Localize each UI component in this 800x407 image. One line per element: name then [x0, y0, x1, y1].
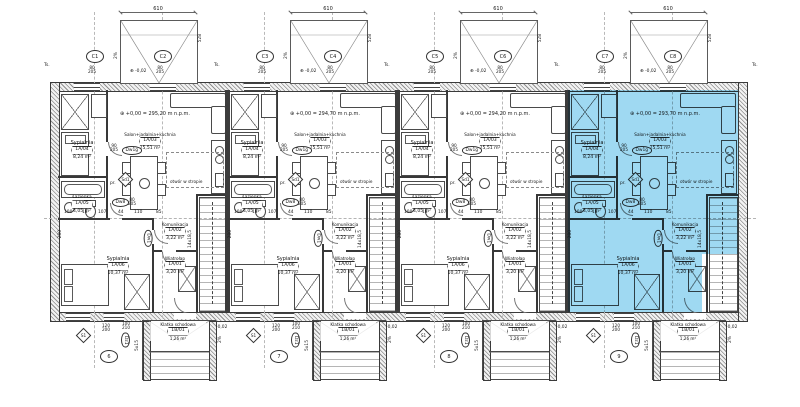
stairs-direction-line: [382, 202, 383, 304]
wardrobe-symbol: [401, 94, 429, 130]
room-tag: 1A/05: [411, 200, 432, 209]
door-size-dim: 100210: [462, 322, 470, 331]
terrace-level-mark: ⊕ -0,02: [130, 70, 146, 74]
level-mark-icon: ⊕: [630, 111, 634, 117]
dim-number: 110: [474, 211, 482, 215]
chair-symbol: [157, 184, 166, 196]
wall: [366, 194, 368, 312]
entrance-door-gap: [684, 313, 706, 320]
window-symbol: [244, 83, 270, 92]
slope-note: 2%: [728, 336, 733, 343]
slope-note: 2%: [218, 336, 223, 343]
chair-symbol: [667, 162, 676, 174]
terrace-level-mark: ⊕ -0,02: [300, 70, 316, 74]
door-tag: Dw8: [112, 198, 129, 207]
chair-symbol: [327, 162, 336, 174]
window-size-dim: 80205: [666, 66, 674, 75]
level-note: -0,02: [726, 326, 737, 330]
room-label-wiatrolap: Wiatrołap 1A/01 3,20 m²: [324, 256, 366, 275]
door-tag: Dz1: [461, 333, 470, 348]
room-tag: 1A/02: [334, 227, 355, 236]
window-size-dim: 80205: [326, 66, 334, 75]
dim-number: 280: [58, 230, 63, 238]
room-tag: 1A/05: [241, 200, 262, 209]
window-symbol: [66, 313, 90, 322]
window-size-dim: 80205: [496, 66, 504, 75]
level-note: -0,02: [216, 326, 227, 330]
wall: [122, 218, 154, 220]
chair-symbol: [157, 162, 166, 174]
room-label-komunikacja: Komunikacja 1A/02 3,22 m²: [324, 222, 366, 241]
wall: [446, 156, 448, 218]
terrace-level-mark: ⊕ -0,02: [470, 70, 486, 74]
sofa-symbol: [551, 106, 566, 134]
level-mark-icon: ⊕: [290, 111, 294, 117]
level-annotation: ⊕ +0,00 = 293,70 m n.p.m.: [630, 112, 700, 117]
room-tag: 1A/05: [581, 200, 602, 209]
dim-number: 44: [458, 211, 464, 215]
door-tag: Dw1g: [462, 146, 482, 155]
door-tag: Dw1g: [292, 146, 312, 155]
dim-number: 280: [568, 230, 573, 238]
window-symbol: [74, 83, 100, 92]
room-label-sypialnia-top: Sypialnia 1A/04 8,24 m²: [59, 140, 105, 160]
stairs-symbol: [369, 197, 398, 312]
room-tag: 1A/04: [71, 146, 92, 155]
room-tag: 1B/01: [507, 327, 528, 336]
terrace-dimension-line: 610: [290, 12, 366, 13]
level-annotation: ⊕ +0,00 = 294,70 m n.p.m.: [290, 112, 360, 117]
room-tag: 1A/04: [411, 146, 432, 155]
axis-dim: 120200: [442, 324, 450, 333]
wall: [662, 250, 672, 252]
wall-note: Ts.: [384, 64, 390, 68]
door-tag: Dw1: [654, 230, 663, 247]
dim-number: 44: [288, 211, 294, 215]
wall: [662, 244, 664, 312]
dim-number: 280: [398, 230, 403, 238]
ceiling-opening-label: otwór w stropie: [510, 180, 542, 184]
wall: [346, 250, 368, 252]
section-marker: S1: [416, 328, 432, 344]
door-swing-symbol: [684, 298, 700, 314]
door-tag: Dw1: [484, 230, 493, 247]
window-symbol: [320, 83, 346, 92]
wall: [228, 176, 277, 178]
room-tag: 1A/06: [107, 262, 128, 271]
terrace-depth-dim: 528: [198, 34, 203, 42]
room-label-sypialnia-bottom: Sypialnia 1A/06 10,37 m²: [262, 256, 314, 276]
window-size-dim: 80205: [156, 66, 164, 75]
section-marker: S1: [76, 328, 92, 344]
ext-stairs-note: 5x15: [135, 340, 140, 351]
door-tag: Dw1: [144, 230, 153, 247]
washer-note: pr.: [450, 182, 456, 186]
door-swing-symbol: [344, 298, 360, 314]
room-tag: 1A/05: [71, 200, 92, 209]
room-tag: 1B/01: [337, 327, 358, 336]
level-annotation: ⊕ +0,00 = 294,20 m n.p.m.: [460, 112, 530, 117]
unit-interior: otwór w stropie 14x18,5 ⊕ +0,00 = 293,70…: [568, 90, 738, 312]
terrace-width-dim: 610: [662, 6, 674, 12]
dwelling-unit: C5 C6 80205 80205 Ts. 610 528 2% ⊕ -: [398, 0, 568, 407]
window-symbol: [406, 313, 430, 322]
dim-number: 110: [644, 211, 652, 215]
axis-bubble: C3: [256, 50, 274, 63]
dim-number: 85: [666, 211, 672, 215]
desk-symbol: [601, 94, 617, 118]
door-swing-symbol: [174, 298, 190, 314]
window-symbol: [444, 313, 464, 322]
section-marker: S1: [246, 328, 262, 344]
window-symbol: [614, 313, 634, 322]
window-symbol: [660, 83, 686, 92]
dim-number: 85: [496, 211, 502, 215]
wall: [398, 218, 450, 220]
axis-bubble: 8: [440, 350, 458, 363]
stairs-direction-line: [212, 202, 213, 304]
door-tag: Dz1: [631, 333, 640, 348]
wall: [322, 250, 332, 252]
room-label-klatka: Klatka schodowa 1B/01 1,26 m²: [490, 322, 546, 341]
wall: [276, 156, 278, 218]
level-mark-icon: ⊕: [120, 111, 124, 117]
slope-note: 2%: [624, 52, 629, 59]
dim-number: 85: [156, 211, 162, 215]
dim-number: 44: [118, 211, 124, 215]
room-tag: 1A/02: [504, 227, 525, 236]
room-label-komunikacja: Komunikacja 1A/02 3,22 m²: [154, 222, 196, 241]
window-symbol: [104, 313, 124, 322]
slope-note: 2%: [114, 52, 119, 59]
wall: [632, 218, 664, 220]
terrace-width-dim: 610: [492, 6, 504, 12]
wall: [568, 176, 617, 178]
wardrobe-symbol: [634, 274, 660, 310]
door-size-dim: 80205: [128, 198, 136, 207]
wall: [228, 218, 280, 220]
room-tag: 1A/03: [139, 137, 160, 146]
wall: [706, 194, 708, 312]
desk-symbol: [261, 94, 277, 118]
wall: [292, 218, 324, 220]
wall-note: Ts.: [44, 64, 50, 68]
washer-note: pr.: [620, 182, 626, 186]
dim-number: 110: [134, 211, 142, 215]
window-symbol: [490, 83, 516, 92]
ext-stairs-note: 5x15: [475, 340, 480, 351]
slope-note: 2%: [558, 336, 563, 343]
sofa-symbol: [721, 106, 736, 134]
terrace-depth-dim: 528: [708, 34, 713, 42]
axis-bubble: 6: [100, 350, 118, 363]
room-label-lazienka: Łazienka 1A/05 4,05 m²: [229, 195, 275, 214]
slope-note: 2%: [454, 52, 459, 59]
room-label-sypialnia-bottom: Sypialnia 1A/06 10,37 m²: [432, 256, 484, 276]
window-size-dim: 80205: [258, 66, 266, 75]
room-tag: 1A/06: [277, 262, 298, 271]
axis-bubble: C1: [86, 50, 104, 63]
room-label-wiatrolap: Wiatrołap 1A/01 3,20 m²: [664, 256, 706, 275]
wall: [106, 156, 108, 218]
room-tag: 1A/03: [309, 137, 330, 146]
ceiling-opening-label: otwór w stropie: [680, 180, 712, 184]
wall: [366, 194, 398, 196]
wardrobe-symbol: [124, 274, 150, 310]
terrace-level-mark: ⊕ -0,02: [640, 70, 656, 74]
wardrobe-symbol: [294, 274, 320, 310]
axis-bubble: C8: [664, 50, 682, 63]
door-size-dim: 100210: [122, 322, 130, 331]
wall: [462, 218, 494, 220]
section-marker: S1: [586, 328, 602, 344]
axis-bubble: C7: [596, 50, 614, 63]
door-tag: Dw1g: [122, 146, 142, 155]
room-tag: 1A/06: [447, 262, 468, 271]
unit-interior: otwór w stropie 14x18,5 ⊕ +0,00 = 294,20…: [398, 90, 568, 312]
wall: [196, 194, 228, 196]
room-tag: 1A/03: [649, 137, 670, 146]
wall-note: Ts.: [554, 64, 560, 68]
room-label-sypialnia-top: Sypialnia 1A/04 8,24 m²: [399, 140, 445, 160]
axis-bubble: C4: [324, 50, 342, 63]
entrance-door-gap: [514, 313, 536, 320]
axis-dim: 120200: [102, 324, 110, 333]
door-tag: Dz1: [121, 333, 130, 348]
window-size-dim: 80205: [88, 66, 96, 75]
wall: [492, 244, 494, 312]
room-label-komunikacja: Komunikacja 1A/02 3,22 m²: [664, 222, 706, 241]
wall: [176, 250, 198, 252]
wall: [536, 194, 538, 312]
dim-number: 280: [228, 230, 233, 238]
dwelling-unit: C7 C8 80205 80205 Ts. 610 528 2% ⊕ -: [568, 0, 738, 407]
room-label-sypialnia-bottom: Sypialnia 1A/06 10,37 m²: [602, 256, 654, 276]
room-label-sypialnia-bottom: Sypialnia 1A/06 10,37 m²: [92, 256, 144, 276]
wardrobe-symbol: [571, 94, 599, 130]
room-tag: 1A/02: [164, 227, 185, 236]
axis-dim: 120200: [612, 324, 620, 333]
axis-bubble: 7: [270, 350, 288, 363]
desk-symbol: [91, 94, 107, 118]
wall: [492, 250, 502, 252]
room-tag: 1A/02: [674, 227, 695, 236]
window-symbol: [274, 313, 294, 322]
window-symbol: [236, 313, 260, 322]
dwelling-unit: C1 C2 80205 80205 Ts. 610 528 2% ⊕ -: [58, 0, 228, 407]
wall: [152, 244, 154, 312]
slope-note: 2%: [284, 52, 289, 59]
terrace-width-dim: 610: [322, 6, 334, 12]
wall: [398, 176, 447, 178]
wall-note: Ts.: [752, 64, 758, 68]
dim-number: 44: [628, 211, 634, 215]
window-symbol: [584, 83, 610, 92]
ceiling-opening-label: otwór w stropie: [170, 180, 202, 184]
terrace-dimension-line: 610: [630, 12, 706, 13]
wardrobe-symbol: [464, 274, 490, 310]
stairs-symbol: [709, 197, 738, 312]
window-symbol: [414, 83, 440, 92]
entrance-door-gap: [344, 313, 366, 320]
ext-stairs-note: 5x15: [645, 340, 650, 351]
washer-note: pr.: [110, 182, 116, 186]
level-annotation: ⊕ +0,00 = 295,20 m n.p.m.: [120, 112, 190, 117]
desk-symbol: [431, 94, 447, 118]
dwelling-unit: C3 C4 80205 80205 Ts. 610 528 2% ⊕ -: [228, 0, 398, 407]
room-tag: 1A/01: [164, 261, 185, 270]
door-size-dim: 80205: [298, 198, 306, 207]
door-tag: Dw8: [452, 198, 469, 207]
wall: [516, 250, 538, 252]
room-label-wiatrolap: Wiatrołap 1A/01 3,20 m²: [494, 256, 536, 275]
wall: [686, 250, 708, 252]
room-label-komunikacja: Komunikacja 1A/02 3,22 m²: [494, 222, 536, 241]
exterior-wall-right: [738, 82, 748, 322]
axis-bubble: C2: [154, 50, 172, 63]
room-tag: 1A/01: [674, 261, 695, 270]
level-mark-icon: ⊕: [460, 111, 464, 117]
door-tag: Dw1: [314, 230, 323, 247]
room-label-klatka: Klatka schodowa 1B/01 1,26 m²: [660, 322, 716, 341]
door-size-dim: 100210: [632, 322, 640, 331]
wall: [616, 156, 618, 218]
stairs-direction-line: [722, 202, 723, 304]
floor-plan-canvas: Ts. C1 C2 80205 80205 Ts.: [0, 0, 800, 407]
door-swing-symbol: [514, 298, 530, 314]
door-tag: Dw1g: [632, 146, 652, 155]
room-tag: 1A/04: [241, 146, 262, 155]
wall: [196, 194, 198, 312]
door-tag: Dw8: [282, 198, 299, 207]
room-tag: 1A/03: [479, 137, 500, 146]
terrace-width-dim: 610: [152, 6, 164, 12]
sofa-symbol: [381, 106, 396, 134]
dim-number: 85: [326, 211, 332, 215]
wall: [152, 250, 162, 252]
room-label-klatka: Klatka schodowa 1B/01 1,26 m²: [320, 322, 376, 341]
level-note: -0,02: [556, 326, 567, 330]
stairs-symbol: [199, 197, 228, 312]
wall: [322, 244, 324, 312]
door-size-dim: 80205: [468, 198, 476, 207]
level-note: -0,02: [386, 326, 397, 330]
entrance-door-gap: [174, 313, 196, 320]
window-size-dim: 80205: [428, 66, 436, 75]
unit-interior: otwór w stropie 14x18,5 ⊕ +0,00 = 295,20…: [58, 90, 228, 312]
room-label-sypialnia-top: Sypialnia 1A/04 8,24 m²: [229, 140, 275, 160]
sofa-symbol: [211, 106, 226, 134]
chair-symbol: [497, 162, 506, 174]
terrace-dimension-line: 610: [120, 12, 196, 13]
chair-symbol: [327, 184, 336, 196]
ext-stairs-note: 5x15: [305, 340, 310, 351]
window-size-dim: 80205: [598, 66, 606, 75]
stairs-symbol: [539, 197, 568, 312]
door-tag: Dw8: [622, 198, 639, 207]
room-tag: 1B/01: [167, 327, 188, 336]
window-symbol: [576, 313, 600, 322]
axis-bubble: C5: [426, 50, 444, 63]
terrace-depth-dim: 528: [538, 34, 543, 42]
room-tag: 1A/06: [617, 262, 638, 271]
room-label-sypialnia-top: Sypialnia 1A/04 8,24 m²: [569, 140, 615, 160]
washer-note: pr.: [280, 182, 286, 186]
wall: [58, 218, 110, 220]
unit-interior: otwór w stropie 14x18,5 ⊕ +0,00 = 294,70…: [228, 90, 398, 312]
wall: [58, 176, 107, 178]
slope-note: 2%: [388, 336, 393, 343]
room-label-lazienka: Łazienka 1A/05 4,05 m²: [399, 195, 445, 214]
dim-number: 110: [304, 211, 312, 215]
window-symbol: [150, 83, 176, 92]
room-tag: 1A/01: [504, 261, 525, 270]
wardrobe-symbol: [231, 94, 259, 130]
chair-symbol: [667, 184, 676, 196]
wardrobe-symbol: [61, 94, 89, 130]
stairs-direction-line: [552, 202, 553, 304]
room-tag: 1A/04: [581, 146, 602, 155]
wall-note: Ts.: [214, 64, 220, 68]
wall: [568, 218, 620, 220]
room-label-wiatrolap: Wiatrołap 1A/01 3,20 m²: [154, 256, 196, 275]
room-label-lazienka: Łazienka 1A/05 4,05 m²: [569, 195, 615, 214]
door-tag: Dz1: [291, 333, 300, 348]
wall: [536, 194, 568, 196]
room-tag: 1A/01: [334, 261, 355, 270]
door-size-dim: 100210: [292, 322, 300, 331]
room-label-lazienka: Łazienka 1A/05 4,05 m²: [59, 195, 105, 214]
terrace-depth-dim: 528: [368, 34, 373, 42]
terrace-dimension-line: 610: [460, 12, 536, 13]
ceiling-opening-label: otwór w stropie: [340, 180, 372, 184]
axis-dim: 120200: [272, 324, 280, 333]
axis-bubble: 9: [610, 350, 628, 363]
wall: [706, 194, 738, 196]
room-tag: 1B/01: [677, 327, 698, 336]
chair-symbol: [497, 184, 506, 196]
room-label-klatka: Klatka schodowa 1B/01 1,26 m²: [150, 322, 206, 341]
door-size-dim: 80205: [638, 198, 646, 207]
axis-bubble: C6: [494, 50, 512, 63]
